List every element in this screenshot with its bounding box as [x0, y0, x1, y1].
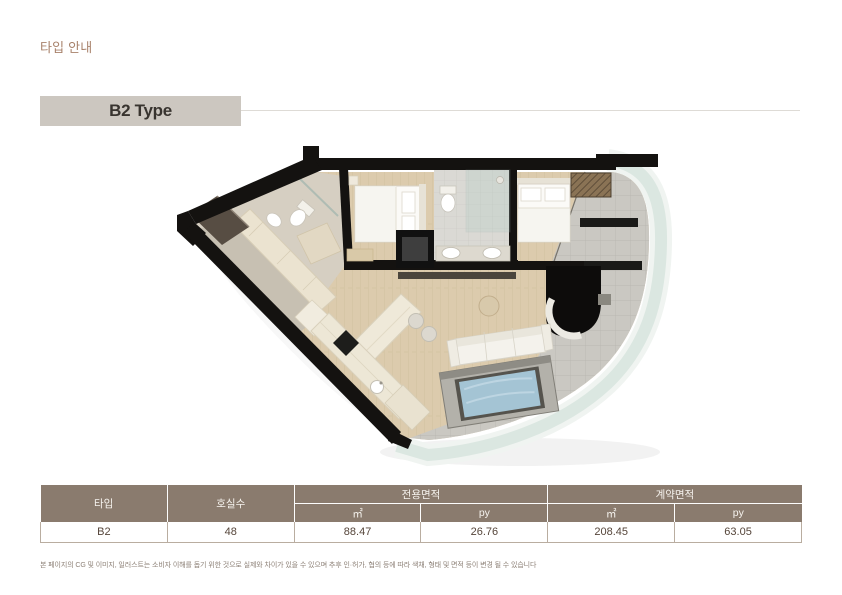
type-info-table-wrap: 타입 호실수 전용면적 계약면적 ㎡ py ㎡ py B2 48 88.47 2… [40, 485, 802, 543]
cell-type: B2 [41, 522, 168, 543]
cell-rooms: 48 [167, 522, 294, 543]
floorplan-image [150, 135, 690, 475]
header-rooms: 호실수 [167, 485, 294, 522]
cell-contract-py: 63.05 [675, 522, 802, 543]
header-exclusive-area: 전용면적 [294, 485, 548, 504]
ottoman [479, 296, 499, 316]
header-contract-area: 계약면적 [548, 485, 802, 504]
bedroom2-bed [517, 178, 571, 242]
header-type: 타입 [41, 485, 168, 522]
section-title: 타입 안내 [40, 37, 92, 56]
type-title: B2 Type [109, 101, 172, 121]
cell-exclusive-m2: 88.47 [294, 522, 421, 543]
header-contract-py: py [675, 504, 802, 523]
tv-console [398, 272, 516, 279]
footnote: 본 페이지의 CG 및 이미지, 일러스트는 소비자 이해를 돕기 위한 것으로… [40, 560, 536, 570]
terrace-shelf-1 [580, 218, 638, 227]
type-info-table: 타입 호실수 전용면적 계약면적 ㎡ py ㎡ py B2 48 88.47 2… [40, 485, 802, 543]
table-row: B2 48 88.47 26.76 208.45 63.05 [41, 522, 802, 543]
title-divider-line [241, 110, 800, 111]
header-contract-m2: ㎡ [548, 504, 675, 523]
cell-exclusive-py: 26.76 [421, 522, 548, 543]
media-cabinet [396, 230, 434, 268]
bedroom1-closet [347, 249, 373, 261]
type-title-box: B2 Type [40, 96, 241, 126]
header-exclusive-m2: ㎡ [294, 504, 421, 523]
header-exclusive-py: py [421, 504, 548, 523]
wardrobe-hatch [571, 173, 611, 197]
cell-contract-m2: 208.45 [548, 522, 675, 543]
